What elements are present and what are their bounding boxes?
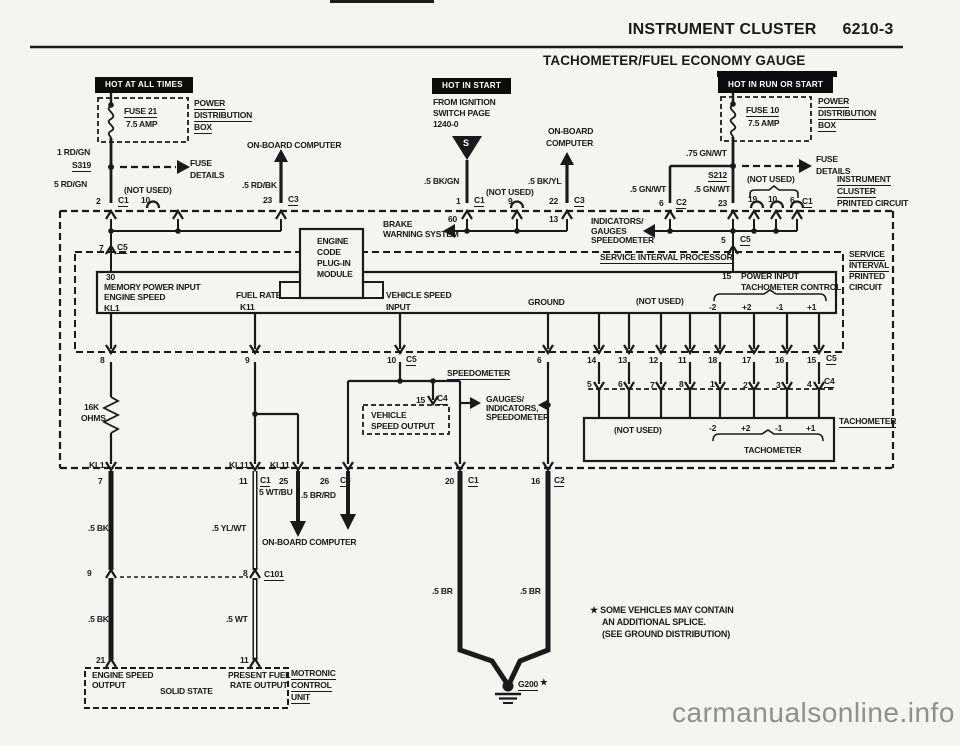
label-mid-vso1: VEHICLE <box>371 411 406 421</box>
label-sip-sv4: CIRCUIT <box>849 283 882 293</box>
label-fr-p10: 10 <box>768 195 777 205</box>
label-tach-m2: -2 <box>709 424 716 434</box>
label-bot-p26: 26 <box>320 477 329 487</box>
label-bot-p11b: 11 <box>240 656 249 666</box>
label-c4row-p7: 7 <box>650 381 655 391</box>
label-fr-p6: 6 <box>659 199 664 209</box>
label-sip-title: SERVICE INTERVAL PROCESSOR <box>600 253 733 264</box>
label-fr-p19: 19 <box>748 195 757 205</box>
splice-note: ★ SOME VEHICLES MAY CONTAIN AN ADDITIONA… <box>590 604 734 640</box>
label-c4row-c4: C4 <box>824 377 834 388</box>
label-sip-vs2: INPUT <box>386 303 411 313</box>
label-sip-q2: +2 <box>742 303 751 313</box>
label-mod-l3: PLUG-IN <box>317 259 351 269</box>
label-bot-obc: ON-BOARD COMPUTER <box>262 538 356 548</box>
label-bot-p9: 9 <box>87 569 92 579</box>
label-fr-c1: C1 <box>802 197 812 208</box>
label-sip-sv3: PRINTED <box>849 272 885 282</box>
wiring-diagram-page: INSTRUMENT CLUSTER6210-3 TACHOMETER/FUEL… <box>0 0 960 746</box>
label-sip-c5: C5 <box>117 243 127 254</box>
label-bot-kl11b: KL11 <box>270 461 290 471</box>
gauges-arrow-right <box>470 397 481 409</box>
label-fr-pd2: DISTRIBUTION <box>818 109 876 120</box>
label-bot-mcu3: UNIT <box>291 693 310 704</box>
label-c5row-c5: C5 <box>406 355 416 366</box>
label-fl-pd1: POWER <box>194 99 225 110</box>
label-fr-w2: .5 GN/WT <box>694 185 730 195</box>
label-tach-label: TACHOMETER <box>839 417 896 428</box>
label-bot-kl11a: KL11 <box>229 461 249 471</box>
label-c5row-p10: 10 <box>387 356 396 366</box>
label-c4row-p1: 1 <box>710 380 715 390</box>
label-fr-ind3: SPEEDOMETER <box>591 236 654 246</box>
label-fr-p6b: 6 <box>790 196 795 206</box>
label-fr-nu: (NOT USED) <box>747 175 795 185</box>
label-bot-star: ★ <box>540 678 547 688</box>
label-bot-g200: G200 <box>518 680 538 691</box>
bottom-external-wires <box>111 471 548 682</box>
label-fm-c1: C1 <box>474 196 484 207</box>
watermark: carmanualsonline.info <box>672 699 955 727</box>
label-fr-fd1: FUSE <box>816 155 838 165</box>
label-c5row-p6: 6 <box>537 356 542 366</box>
label-tach-nu: (NOT USED) <box>614 426 662 436</box>
label-fr-splice: S212 <box>708 171 727 182</box>
label-fl-p10: 10 <box>141 196 150 206</box>
banner-hot-in-start: HOT IN START <box>432 78 511 94</box>
label-mid-speedo: SPEEDOMETER <box>447 369 510 380</box>
fuse-21-element <box>109 106 114 138</box>
label-fm-brk2: WARNING SYSTEM <box>383 230 459 240</box>
page-title-text: INSTRUMENT CLUSTER <box>628 21 816 38</box>
label-fm-p60: 60 <box>448 215 457 225</box>
label-fr-ic2: CLUSTER <box>837 187 876 198</box>
label-fl-p2: 2 <box>96 197 101 207</box>
label-fr-pd1: POWER <box>818 97 849 108</box>
label-tach-q1: +1 <box>806 424 815 434</box>
label-fl-amp: 7.5 AMP <box>126 120 157 130</box>
label-bot-c1: C1 <box>260 476 270 487</box>
label-fm-w1: .5 BK/GN <box>424 177 459 187</box>
label-sip-es: ENGINE SPEED <box>104 293 165 303</box>
label-mid-res2: OHMS <box>81 414 106 424</box>
label-bot-w6: .5 WT <box>226 615 248 625</box>
label-fr-fuse: FUSE 10 <box>746 106 779 117</box>
label-sip-p7: 7 <box>99 244 104 254</box>
label-c4row-p3: 3 <box>776 381 781 391</box>
banner-hot-at-all-times: HOT AT ALL TIMES <box>95 77 193 93</box>
label-c5row-p14: 14 <box>587 356 596 366</box>
label-bot-w4: .5 YL/WT <box>212 524 246 534</box>
label-tach-m1: -1 <box>775 424 782 434</box>
label-fl-c3: C3 <box>288 195 298 206</box>
label-c4row-p4: 4 <box>807 380 812 390</box>
label-fm-ign3: 1240-0 <box>433 120 458 130</box>
label-bot-kl1: KL1 <box>89 461 104 471</box>
label-fr-amp: 7.5 AMP <box>748 119 779 129</box>
label-bot-c101: C101 <box>264 570 284 581</box>
label-bot-p8: 8 <box>243 569 248 579</box>
page-title: INSTRUMENT CLUSTER6210-3 <box>628 22 894 38</box>
service-interval-printed-circuit-boundary <box>75 252 843 352</box>
label-bot-w2: .5 BR/RD <box>301 491 336 501</box>
label-bot-br2: .5 BR <box>520 587 541 597</box>
label-bot-p7: 7 <box>98 477 103 487</box>
label-sip-k11: K11 <box>240 303 255 313</box>
label-fr-p23: 23 <box>718 199 727 209</box>
label-fm-obc1: ON-BOARD <box>548 127 593 137</box>
label-bot-w3: .5 BK <box>88 524 109 534</box>
resistor-16k <box>104 397 118 433</box>
label-c5row-p11: 11 <box>678 356 687 366</box>
label-sip-c5b: C5 <box>740 235 750 246</box>
label-c4row-p5: 5 <box>587 380 592 390</box>
label-fl-pd2: DISTRIBUTION <box>194 111 252 122</box>
label-bot-mcu1: MOTRONIC <box>291 669 336 680</box>
label-mid-res1: 16K <box>84 403 99 413</box>
label-fl-splice: S319 <box>72 161 91 172</box>
label-tach-brace: TACHOMETER <box>744 446 801 456</box>
label-mid-c4: C4 <box>437 394 447 405</box>
ignition-switch-s-symbol: S <box>463 139 469 148</box>
label-bot-w5: .5 BK <box>88 615 109 625</box>
label-c4row-p8: 8 <box>679 380 684 390</box>
banner-hot-in-run-or-start: HOT IN RUN OR START <box>718 77 833 93</box>
label-c5row-p17: 17 <box>742 356 751 366</box>
label-bot-p21: 21 <box>96 656 105 666</box>
label-bot-mcu2: CONTROL <box>291 681 332 692</box>
splice-note-line1: ★ SOME VEHICLES MAY CONTAIN <box>590 604 734 616</box>
label-fm-ign1: FROM IGNITION <box>433 98 496 108</box>
label-bot-mot3: SOLID STATE <box>160 687 213 697</box>
label-c5row-p13: 13 <box>618 356 627 366</box>
label-fl-w1: 1 RD/GN <box>57 148 90 158</box>
label-bot-mot2: OUTPUT <box>92 681 126 691</box>
label-bot-c1b: C1 <box>468 476 478 487</box>
label-sip-tc: TACHOMETER CONTROL <box>741 283 841 293</box>
label-mod-l1: ENGINE <box>317 237 348 247</box>
label-c4row-p6: 6 <box>618 380 623 390</box>
splice-note-line3: (SEE GROUND DISTRIBUTION) <box>602 628 734 640</box>
label-c5row-p15: 15 <box>807 356 816 366</box>
label-mod-l2: CODE <box>317 248 341 258</box>
label-fm-p13: 13 <box>549 215 558 225</box>
label-fl-pd3: BOX <box>194 123 212 134</box>
label-bot-c3: C3 <box>340 476 350 487</box>
label-fl-w2: 5 RD/GN <box>54 180 87 190</box>
label-sip-nu: (NOT USED) <box>636 297 684 307</box>
label-mid-gi3: SPEEDOMETER <box>486 413 549 423</box>
sip-output-wires <box>111 313 819 349</box>
label-fm-p9: 9 <box>508 197 513 207</box>
label-c5row-c5b: C5 <box>826 354 836 365</box>
fuse-10-element <box>731 105 736 137</box>
label-c5row-p9: 9 <box>245 356 250 366</box>
label-mid-p15: 15 <box>416 396 425 406</box>
label-sip-pi: POWER INPUT <box>741 272 799 282</box>
label-bot-br1: .5 BR <box>432 587 453 597</box>
label-fl-p23: 23 <box>263 196 272 206</box>
page-number: 6210-3 <box>842 21 893 38</box>
label-bot-p11: 11 <box>239 477 248 487</box>
label-sip-fuel: FUEL RATE <box>236 291 281 301</box>
label-fr-c2: C2 <box>676 198 686 209</box>
label-fl-fd2: DETAILS <box>190 171 224 181</box>
label-mid-vso2: SPEED OUTPUT <box>371 422 435 432</box>
label-fm-p22: 22 <box>549 197 558 207</box>
splice-s319-dot <box>108 164 114 170</box>
label-c4row-p2: 2 <box>743 381 748 391</box>
label-fr-ic1: INSTRUMENT <box>837 175 891 186</box>
label-c5row-p16: 16 <box>775 356 784 366</box>
label-fm-ign2: SWITCH PAGE <box>433 109 490 119</box>
label-fm-obc2: COMPUTER <box>546 139 593 149</box>
gauges-arrow-left <box>538 399 549 411</box>
label-fr-w3: .5 GN/WT <box>630 185 666 195</box>
label-bot-p16: 16 <box>531 477 540 487</box>
label-fr-w1: .75 GN/WT <box>686 149 727 159</box>
label-fl-fuse: FUSE 21 <box>124 107 157 118</box>
label-bot-w1: 5 WT/BU <box>259 488 293 498</box>
label-fr-pd3: BOX <box>818 121 836 132</box>
label-sip-m1: -1 <box>776 303 783 313</box>
label-tach-q2: +2 <box>741 424 750 434</box>
label-bot-mot5: RATE OUTPUT <box>230 681 288 691</box>
label-c5row-p12: 12 <box>649 356 658 366</box>
label-bot-c2: C2 <box>554 476 564 487</box>
label-fm-c3: C3 <box>574 196 584 207</box>
label-bot-p25: 25 <box>279 477 288 487</box>
label-sip-p15: 15 <box>722 272 731 282</box>
label-fl-fd1: FUSE <box>190 159 212 169</box>
label-sip-vs1: VEHICLE SPEED <box>386 291 451 301</box>
label-sip-m2: -2 <box>709 303 716 313</box>
splice-note-line2: AN ADDITIONAL SPLICE. <box>602 616 734 628</box>
label-c5row-p18: 18 <box>708 356 717 366</box>
label-fl-w3: .5 RD/BK <box>242 181 277 191</box>
label-fl-obc: ON-BOARD COMPUTER <box>247 141 341 151</box>
label-mod-l4: MODULE <box>317 270 353 280</box>
label-c5row-p8: 8 <box>100 356 105 366</box>
label-sip-gnd: GROUND <box>528 298 565 308</box>
label-sip-q1: +1 <box>807 303 816 313</box>
diagram-subtitle: TACHOMETER/FUEL ECONOMY GAUGE <box>543 54 805 68</box>
scan-edge-mark <box>330 0 434 3</box>
label-fm-w2: .5 BK/YL <box>528 177 561 187</box>
label-fm-p1: 1 <box>456 197 461 207</box>
label-fl-c1: C1 <box>118 196 128 207</box>
label-bot-p20: 20 <box>445 477 454 487</box>
label-sip-p5: 5 <box>721 236 726 246</box>
label-sip-kl1: KL1 <box>104 304 119 314</box>
label-fr-ic3: PRINTED CIRCUIT <box>837 199 908 209</box>
